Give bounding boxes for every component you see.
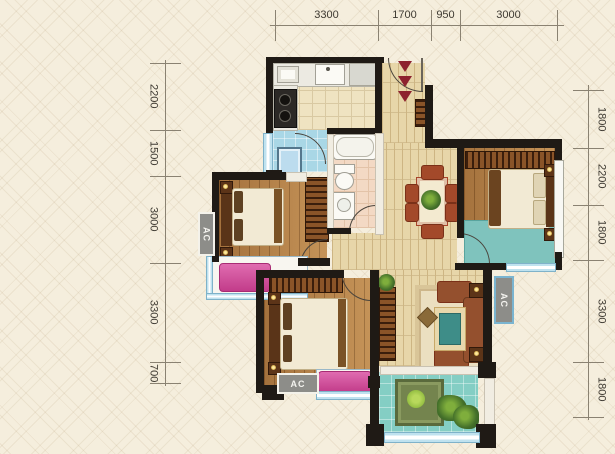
bedroom3-bed-foot: [338, 299, 346, 367]
bedside-lamp: [547, 167, 552, 172]
bedroom3-pillow: [283, 303, 292, 330]
wall-bedroom1-top: [212, 172, 286, 180]
wall-bedroom1-top-light: [286, 172, 307, 182]
dim-tick: [573, 417, 604, 418]
bedroom3-wardrobe: [269, 277, 343, 293]
entry-arrow-icon: [398, 91, 412, 102]
bedroom1-headboard: [221, 186, 232, 246]
dim-line-top: [270, 25, 564, 26]
dim-label-left-1500: 1500: [146, 130, 161, 176]
wall-entry-right: [425, 85, 433, 145]
table-plant: [421, 190, 441, 210]
toilet-bowl: [335, 172, 354, 190]
dining-chair: [421, 224, 444, 239]
dim-label-top-1700: 1700: [378, 9, 431, 22]
bedroom1-pillow: [234, 219, 243, 241]
bedroom2-wardrobe: [465, 151, 555, 169]
bedroom2-bottom-window: [506, 263, 556, 272]
bedroom3-headboard: [269, 296, 280, 372]
wall-bedroom3-left: [256, 270, 264, 392]
bedroom2-pillow: [533, 200, 546, 225]
dim-label-left-700: 700: [146, 355, 161, 391]
dim-label-right-3300: 3300: [594, 260, 609, 362]
dining-chair: [405, 184, 419, 203]
corridor-floor: [332, 233, 382, 270]
wall-kitchen-left: [266, 57, 273, 135]
balcony-mat-circle: [407, 390, 425, 408]
dining-chair: [421, 165, 444, 180]
dim-label-right-2200: 2200: [594, 148, 609, 205]
dim-tick: [557, 10, 558, 41]
coffee-table-top: [439, 313, 461, 345]
utility-window: [263, 133, 273, 174]
wall-bath-bottom: [327, 228, 351, 234]
wall-bedroom2-left: [457, 148, 464, 238]
dim-label-top-950: 950: [427, 9, 464, 22]
tv-cabinet: [379, 287, 396, 361]
kitchen-fridge: [349, 63, 376, 86]
bedroom3-window-seat: [318, 371, 372, 393]
table-lamp: [474, 287, 479, 292]
wall-kitchen-right: [375, 57, 382, 133]
bedside-lamp: [547, 231, 552, 236]
wall-bedroom2-top: [425, 139, 562, 148]
stove-burner: [279, 94, 291, 106]
ac-unit-bottom: AC: [277, 373, 319, 394]
dim-label-left-3300: 3300: [146, 263, 161, 362]
entry-arrow-icon: [398, 61, 412, 72]
dim-label-left-2200: 2200: [146, 63, 161, 130]
floor-plan-canvas: 3300 1700 950 3000 2200 1500 3000 3300 7…: [0, 0, 615, 454]
table-lamp: [474, 351, 479, 356]
appliance-dial: [326, 67, 330, 71]
balcony-post-bl: [366, 424, 384, 446]
ac-unit-left: AC: [198, 212, 215, 256]
balcony-bottom-window: [384, 432, 480, 443]
wall-bath-top: [327, 128, 380, 134]
wall-living-right: [483, 270, 492, 370]
living-plant: [378, 274, 395, 291]
wall-bedroom3-right: [370, 270, 379, 380]
wall-bath-hall: [375, 133, 384, 235]
dim-label-right-1800a: 1800: [594, 90, 609, 148]
wall-bedroom3-top: [256, 270, 344, 278]
wall-living-balcony: [380, 366, 482, 375]
balcony-post-tr: [478, 362, 496, 378]
bedroom3-pillow: [283, 335, 292, 362]
bedroom1-bed-foot: [274, 189, 282, 243]
bedroom2-blanket: [489, 170, 501, 226]
wall-kitchen-top: [266, 57, 384, 63]
dim-label-left-3000: 3000: [146, 176, 161, 263]
kitchen-sink: [277, 66, 299, 83]
wall-bedroom1-bottom: [298, 258, 330, 266]
stove-burner: [279, 110, 291, 122]
bedroom2-right-window: [554, 160, 564, 258]
bedroom3-window-glass: [316, 391, 374, 400]
dim-label-right-1800b: 1800: [594, 205, 609, 260]
dim-label-top-3300: 3300: [275, 9, 378, 22]
bedside-lamp: [223, 250, 228, 255]
bedroom1-pillow: [234, 191, 243, 213]
ac-unit-right: AC: [494, 276, 514, 324]
bedroom1-wardrobe: [305, 177, 329, 242]
dim-line-right: [588, 85, 589, 420]
dim-label-right-1800c: 1800: [594, 362, 609, 417]
bedside-lamp: [223, 184, 228, 189]
bedside-lamp: [271, 295, 276, 300]
dining-chair: [405, 203, 419, 222]
balcony-right-band: [484, 378, 495, 428]
bedside-lamp: [271, 365, 276, 370]
dim-label-top-3000: 3000: [460, 9, 557, 22]
wall-balcony-left: [370, 372, 379, 432]
entry-arrow-icon: [398, 76, 412, 87]
entry-door-leaf: [421, 58, 423, 91]
kitchen-appliance: [315, 64, 345, 85]
bathtub-basin: [336, 137, 374, 157]
dim-line-left: [165, 60, 166, 386]
entry-arrows: [398, 59, 412, 104]
vanity-basin: [337, 198, 351, 212]
wall-bath-left: [327, 134, 334, 232]
